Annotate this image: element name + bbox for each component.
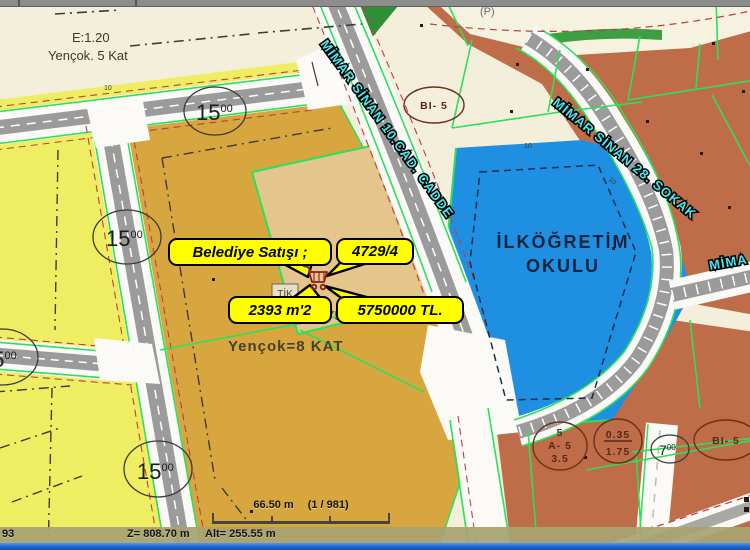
svg-text:BI- 5: BI- 5 — [712, 435, 740, 447]
status-altitude: Alt= 255.55 m — [205, 528, 276, 540]
zone-label-yencok5: Yençok. 5 Kat — [48, 48, 128, 63]
scale-distance: 66.50 m — [253, 499, 293, 511]
callout-sale-type[interactable]: Belediye Satışı ; — [168, 238, 332, 266]
tick-10-a: 10 — [104, 85, 112, 92]
parking-label: (P) — [480, 6, 495, 18]
status-left-value: 93 — [2, 528, 14, 540]
svg-text:3.5: 3.5 — [551, 453, 569, 465]
svg-text:0.35: 0.35 — [606, 429, 630, 441]
tick-10-b: 10 — [524, 143, 532, 150]
school-label-line2: OKULU — [526, 256, 600, 276]
scale-bar: 66.50 m (1 / 981) — [212, 499, 390, 524]
svg-text:5: 5 — [557, 427, 564, 439]
taskbar[interactable] — [0, 543, 750, 550]
callout-area[interactable]: 2393 m'2 — [228, 296, 332, 324]
callout-parcel-number[interactable]: 4729/4 — [336, 238, 414, 265]
status-bar: 93 Z= 808.70 m Alt= 255.55 m — [0, 527, 750, 543]
toolbar-strip — [0, 0, 750, 7]
scale-ratio: (1 / 981) — [308, 499, 349, 511]
svg-text:BI- 5: BI- 5 — [420, 100, 448, 112]
callout-price[interactable]: 5750000 TL. — [336, 296, 464, 324]
zone-label-yencok8: Yençok=8 KAT — [228, 338, 344, 355]
scale-ruler — [212, 513, 390, 524]
svg-text:A- 5: A- 5 — [548, 440, 572, 452]
school-label-line1: İLKÖĞRETİM — [497, 231, 630, 252]
svg-text:1.75: 1.75 — [606, 446, 630, 458]
gis-application-window: E:1.20 Yençok. 5 Kat Yençok=8 KAT E=1.75… — [0, 0, 750, 550]
zone-label-e120: E:1.20 — [72, 30, 110, 45]
status-z-coordinate: Z= 808.70 m — [127, 528, 190, 540]
